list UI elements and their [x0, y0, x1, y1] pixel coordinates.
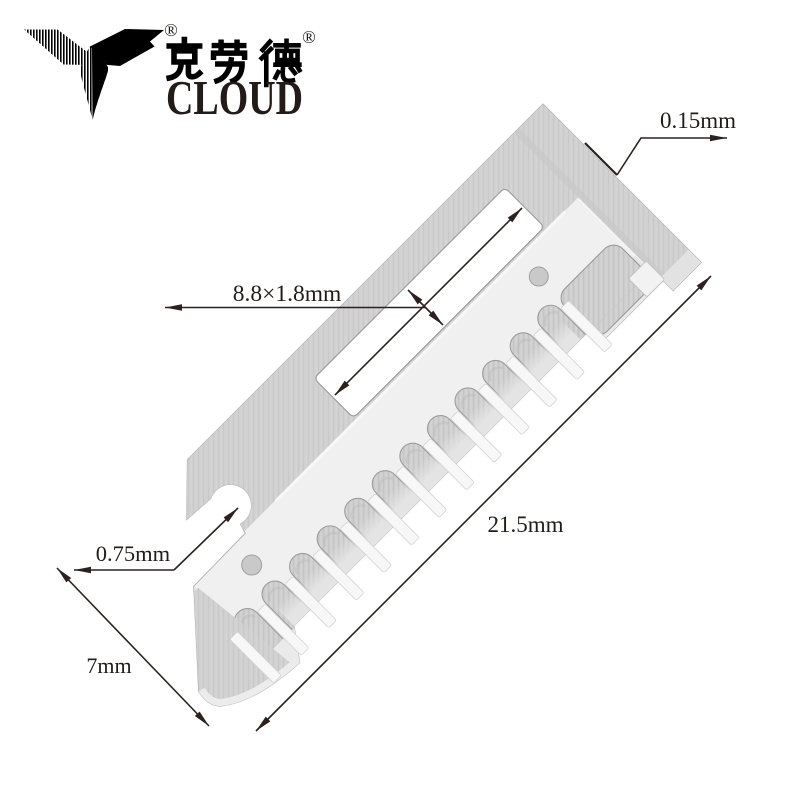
svg-text:®: ® [302, 27, 316, 47]
svg-text:7mm: 7mm [86, 653, 131, 678]
svg-text:0.75mm: 0.75mm [96, 541, 171, 566]
svg-text:21.5mm: 21.5mm [487, 512, 563, 537]
svg-text:®: ® [164, 20, 178, 40]
svg-text:8.8×1.8mm: 8.8×1.8mm [233, 281, 342, 307]
svg-text:CLOUD: CLOUD [166, 70, 303, 125]
svg-text:0.15mm: 0.15mm [660, 108, 736, 133]
